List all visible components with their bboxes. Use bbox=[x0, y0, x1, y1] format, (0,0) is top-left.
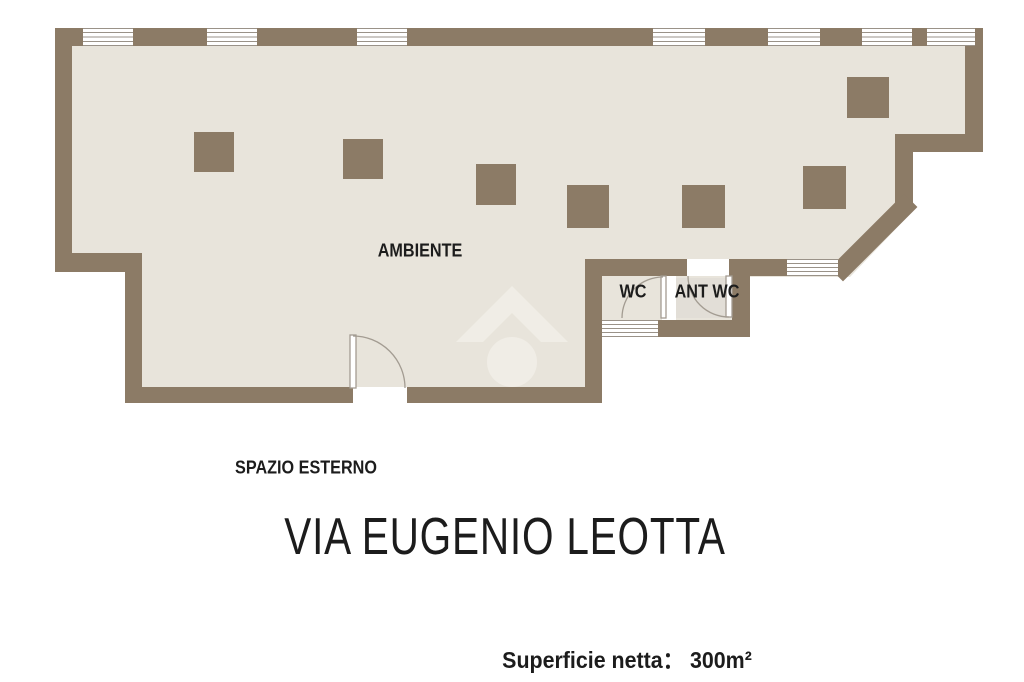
net-area-text: Superficie netta： 300m² bbox=[502, 641, 752, 675]
room-label-ambiente: AMBIENTE bbox=[378, 241, 463, 262]
floor-plan-drawing bbox=[0, 0, 1024, 682]
room-label-ant-wc: ANT WC bbox=[675, 282, 740, 303]
floor-plan-page: AMBIENTE WC ANT WC SPAZIO ESTERNO VIA EU… bbox=[0, 0, 1024, 682]
outside-space-label: SPAZIO ESTERNO bbox=[235, 458, 377, 479]
street-title: VIA EUGENIO LEOTTA bbox=[284, 507, 726, 567]
room-label-wc: WC bbox=[620, 282, 647, 303]
